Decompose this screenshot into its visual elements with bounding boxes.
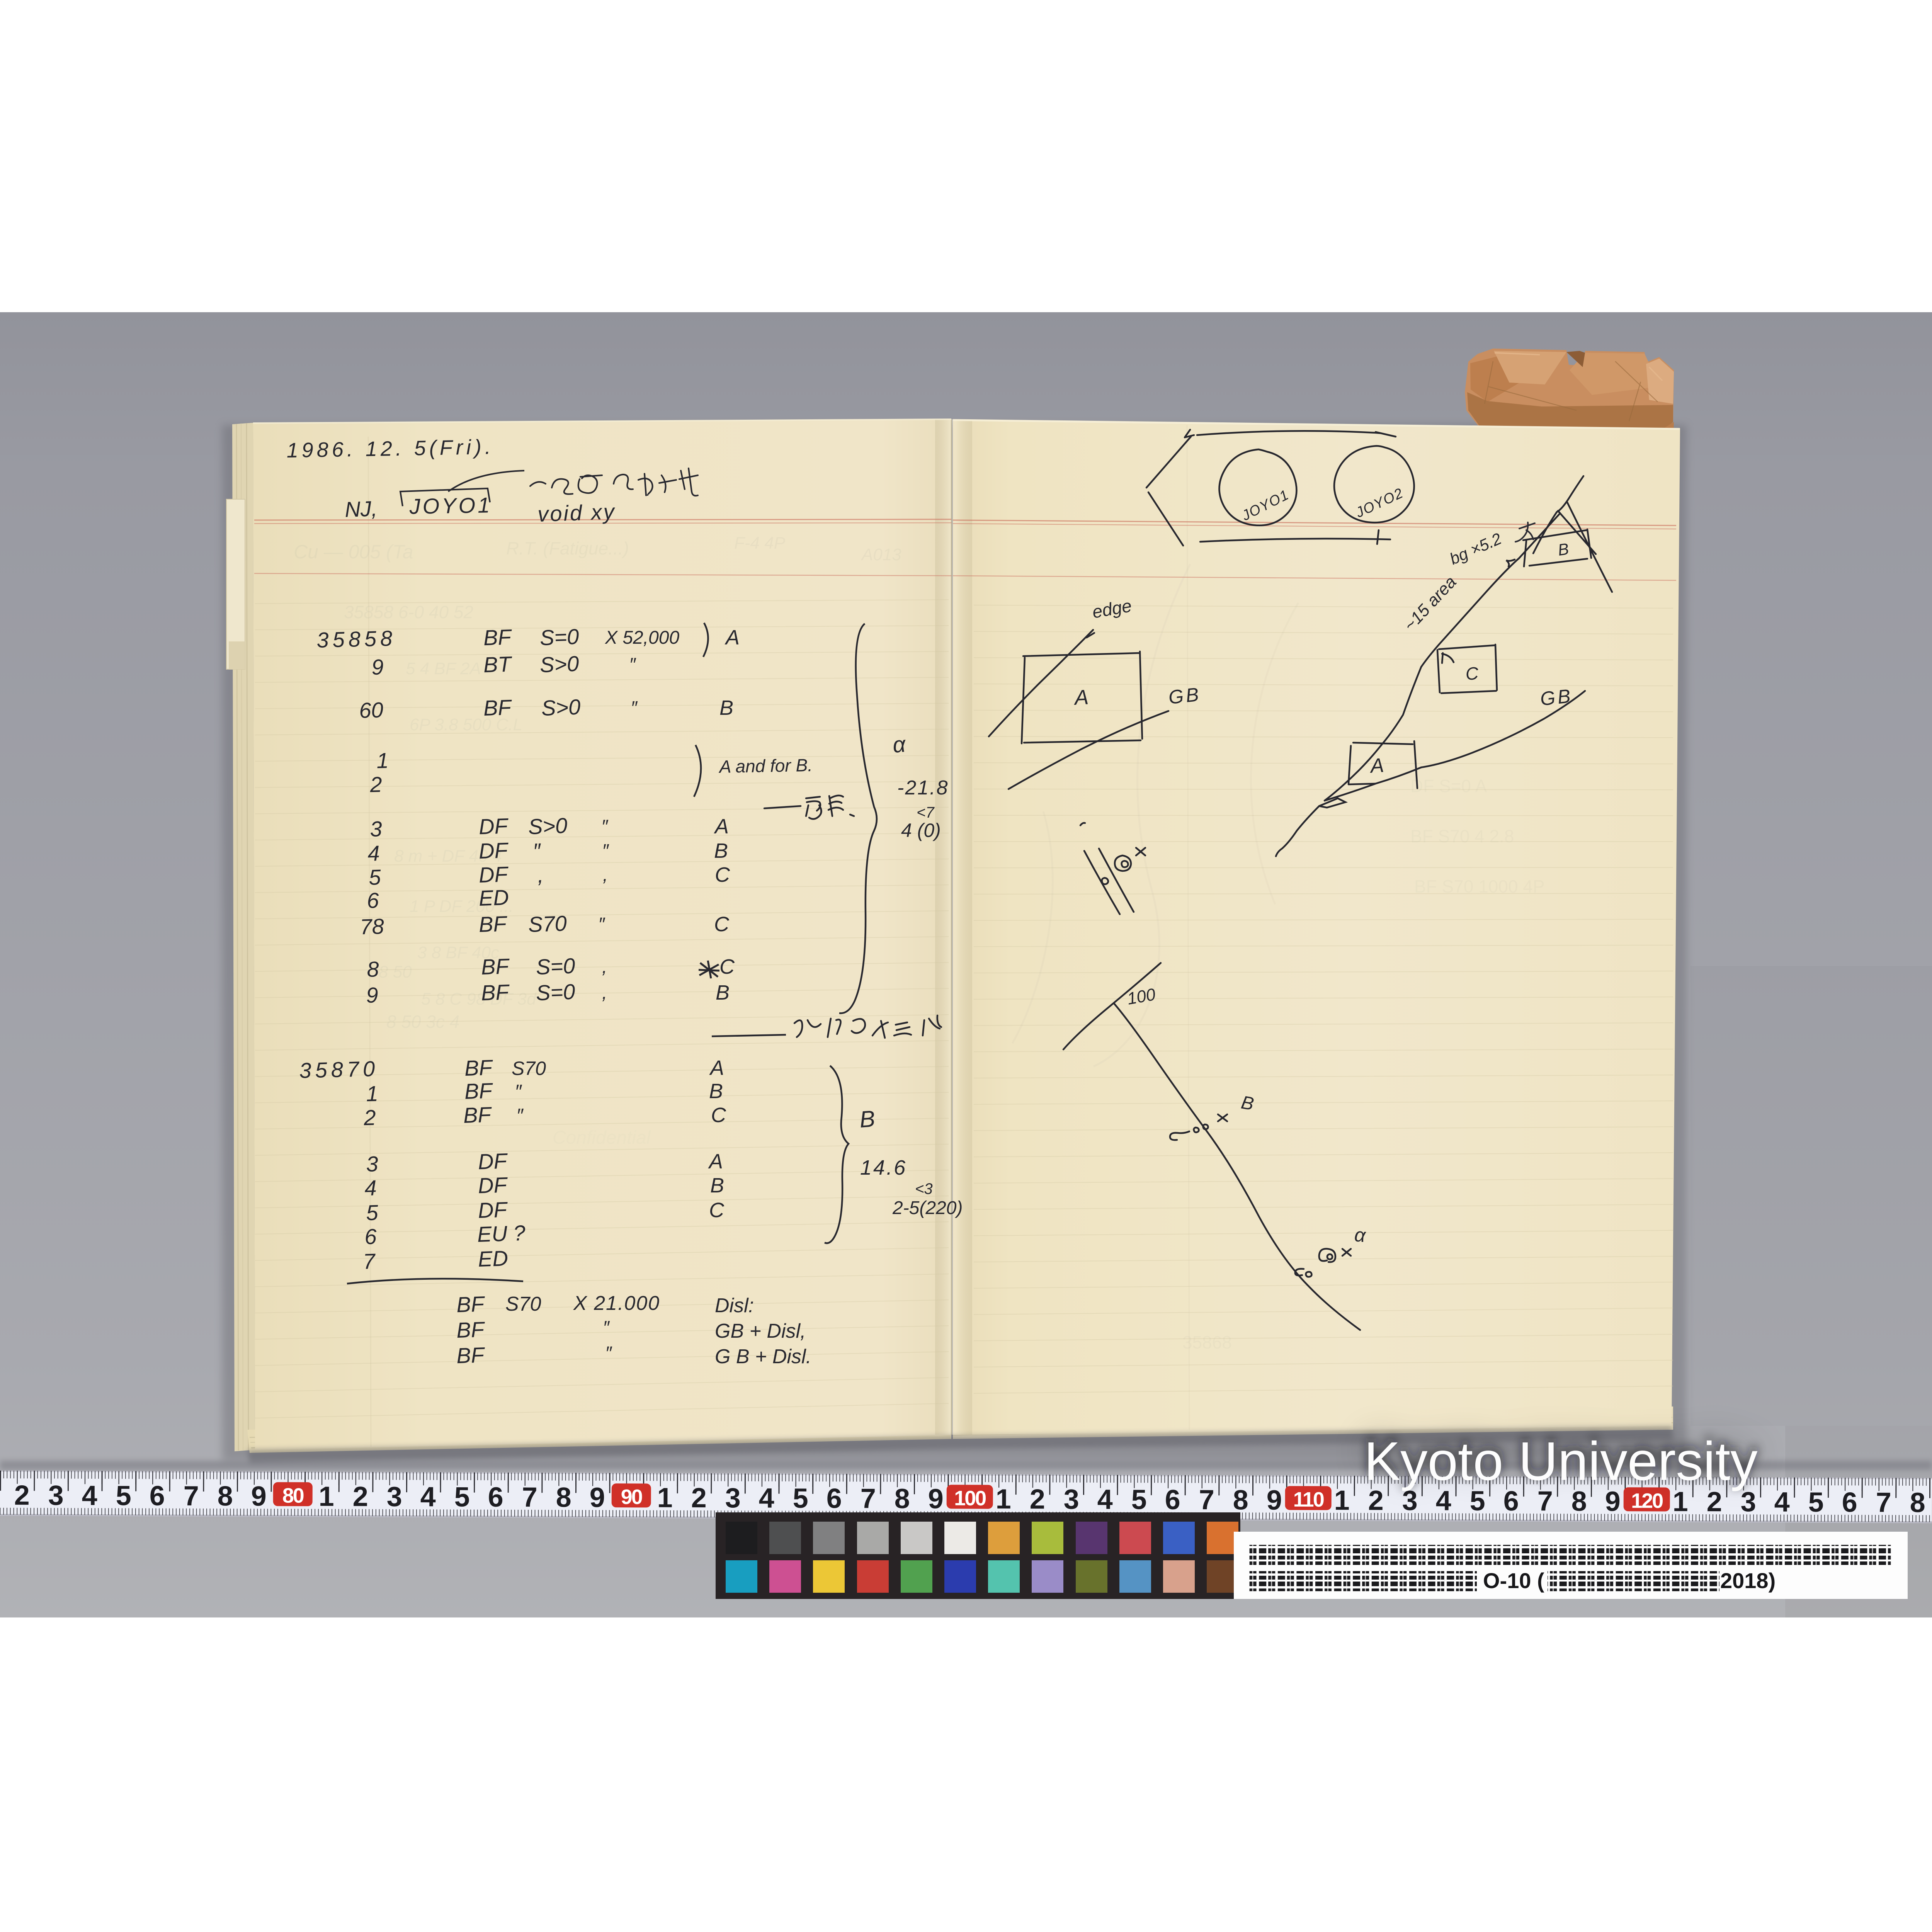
svg-text:2: 2 — [1030, 1484, 1045, 1515]
svg-text:BF: BF — [481, 980, 510, 1005]
svg-text:S>0: S>0 — [528, 813, 568, 839]
svg-text:C: C — [709, 1199, 724, 1222]
svg-text:DF: DF — [478, 1148, 509, 1174]
svg-text:35858: 35858 — [316, 626, 396, 652]
svg-text:3: 3 — [1064, 1484, 1079, 1515]
svg-text:EU ?: EU ? — [477, 1221, 526, 1247]
svg-text:DF: DF — [478, 1197, 509, 1223]
svg-text:110: 110 — [1293, 1488, 1324, 1511]
svg-text:7: 7 — [861, 1483, 876, 1514]
svg-text:7: 7 — [1876, 1487, 1891, 1518]
svg-text:C: C — [1465, 663, 1480, 684]
svg-text:″: ″ — [602, 841, 609, 861]
svg-text:BT: BT — [483, 651, 513, 677]
svg-text:1: 1 — [1334, 1485, 1350, 1516]
svg-text:BF: BF — [456, 1342, 486, 1368]
svg-text:S=0: S=0 — [536, 954, 575, 979]
svg-text:C: C — [719, 955, 735, 978]
svg-text:8 50: 8 50 — [379, 963, 412, 981]
svg-text:GB: GB — [1167, 683, 1202, 708]
svg-text:A: A — [709, 1056, 724, 1080]
svg-text:8: 8 — [895, 1483, 910, 1514]
svg-text:5: 5 — [454, 1482, 470, 1513]
svg-text:A: A — [724, 626, 740, 649]
svg-text:X 21.000: X 21.000 — [573, 1292, 660, 1315]
svg-text:2: 2 — [369, 772, 383, 797]
svg-text:DF S=0 A: DF S=0 A — [1410, 776, 1487, 796]
svg-text:6: 6 — [1842, 1487, 1857, 1518]
svg-text:8: 8 — [367, 957, 379, 981]
svg-text:S70: S70 — [528, 911, 567, 937]
svg-text:7: 7 — [363, 1249, 376, 1274]
svg-text:A: A — [714, 815, 729, 838]
svg-text:S70: S70 — [512, 1058, 546, 1079]
svg-text:A and for B.: A and for B. — [718, 755, 813, 777]
svg-text:1986. 12. 5(Fri).: 1986. 12. 5(Fri). — [286, 435, 494, 462]
svg-text:B: B — [710, 1174, 724, 1197]
svg-text:8: 8 — [556, 1482, 571, 1513]
svg-text:1: 1 — [996, 1484, 1011, 1515]
svg-text:3: 3 — [366, 1151, 379, 1176]
svg-text:BF: BF — [456, 1291, 486, 1317]
svg-text:2-5(220): 2-5(220) — [892, 1198, 963, 1218]
svg-text:BF: BF — [463, 1102, 493, 1128]
svg-text:9: 9 — [590, 1482, 605, 1513]
svg-text:2: 2 — [14, 1480, 30, 1511]
svg-text:″: ″ — [605, 1343, 612, 1364]
svg-text:4: 4 — [82, 1480, 97, 1511]
svg-text:3: 3 — [48, 1480, 64, 1511]
svg-text:R.T. (Fatigue...): R.T. (Fatigue...) — [506, 538, 629, 558]
svg-text:<3: <3 — [915, 1180, 933, 1197]
svg-text:5 4 BF 2A: 5 4 BF 2A — [406, 659, 481, 678]
svg-text:2: 2 — [363, 1105, 376, 1130]
svg-text:9: 9 — [371, 655, 384, 679]
svg-text:1: 1 — [657, 1483, 673, 1514]
svg-text:S>0: S>0 — [539, 651, 579, 677]
svg-text:78: 78 — [360, 914, 384, 939]
svg-text:A: A — [1073, 685, 1089, 709]
svg-text:2018): 2018) — [1720, 1568, 1776, 1593]
svg-text:4: 4 — [759, 1483, 774, 1514]
svg-text:B: B — [714, 839, 728, 862]
svg-text:Confidential: Confidential — [553, 1128, 651, 1148]
svg-text:4: 4 — [1097, 1484, 1113, 1515]
svg-text:3: 3 — [370, 816, 383, 841]
svg-text:void xy: void xy — [537, 499, 616, 526]
svg-text:<7: <7 — [917, 804, 935, 821]
svg-text:Cu — 005 (Ta: Cu — 005 (Ta — [294, 541, 413, 563]
svg-text:5: 5 — [1131, 1484, 1147, 1515]
svg-text:C: C — [711, 1104, 726, 1127]
svg-text:″: ″ — [603, 1318, 610, 1338]
svg-text:8: 8 — [218, 1481, 233, 1512]
svg-text:90: 90 — [621, 1485, 642, 1509]
svg-text:BF: BF — [483, 695, 513, 720]
svg-text:A: A — [708, 1150, 723, 1173]
svg-text:″: ″ — [629, 655, 636, 675]
svg-text:,: , — [602, 957, 607, 977]
svg-text:GB: GB — [1539, 685, 1574, 709]
svg-text:5: 5 — [1808, 1487, 1824, 1518]
svg-text:Kyoto University: Kyoto University — [1364, 1430, 1758, 1492]
svg-text:6: 6 — [367, 888, 380, 913]
svg-text:DF: DF — [478, 838, 509, 863]
svg-text:80: 80 — [282, 1484, 304, 1507]
svg-text:1: 1 — [366, 1081, 379, 1106]
svg-text:5: 5 — [116, 1480, 131, 1511]
svg-text:3: 3 — [725, 1483, 741, 1514]
svg-text:Disl:: Disl: — [715, 1294, 754, 1317]
svg-text:B: B — [709, 1080, 723, 1103]
svg-text:2: 2 — [353, 1481, 368, 1512]
svg-text:BF: BF — [481, 954, 510, 979]
svg-text:9: 9 — [366, 983, 379, 1007]
svg-text:G B + Disl.: G B + Disl. — [715, 1345, 811, 1368]
svg-text:1: 1 — [376, 748, 389, 773]
svg-text:S>0: S>0 — [541, 695, 581, 720]
svg-text:8: 8 — [1233, 1485, 1248, 1515]
svg-text:9: 9 — [928, 1483, 944, 1514]
svg-text:6: 6 — [1165, 1485, 1180, 1515]
svg-text:,: , — [602, 983, 607, 1003]
svg-text:DF: DF — [478, 1172, 509, 1198]
svg-text:DF: DF — [478, 813, 509, 839]
svg-text:BF S70 1000 4P: BF S70 1000 4P — [1414, 876, 1545, 896]
svg-text:3: 3 — [387, 1481, 402, 1512]
svg-text:7: 7 — [184, 1481, 199, 1512]
svg-text:″: ″ — [598, 914, 605, 935]
svg-text:O-10 (: O-10 ( — [1483, 1568, 1544, 1593]
svg-text:A: A — [1369, 754, 1385, 777]
svg-text:100: 100 — [954, 1486, 986, 1510]
svg-text:C: C — [715, 863, 730, 886]
svg-text:S=0: S=0 — [536, 980, 575, 1005]
svg-text:BF S70 4 2.8: BF S70 4 2.8 — [1410, 826, 1514, 846]
svg-text:BF: BF — [464, 1055, 494, 1080]
svg-text:DF: DF — [478, 862, 509, 887]
svg-text:60: 60 — [359, 697, 384, 723]
svg-text:8 50 3c 4: 8 50 3c 4 — [386, 1012, 459, 1032]
svg-text:BF: BF — [478, 911, 508, 937]
svg-text:S=0: S=0 — [539, 624, 579, 650]
svg-text:,: , — [603, 865, 608, 885]
svg-text:B: B — [859, 1105, 876, 1133]
svg-text:35868: 35868 — [1182, 1332, 1232, 1352]
svg-text:S70: S70 — [505, 1293, 541, 1315]
svg-text:,: , — [537, 862, 544, 887]
svg-text:6: 6 — [364, 1224, 378, 1249]
svg-text:4: 4 — [420, 1481, 436, 1512]
svg-text:ED: ED — [478, 885, 509, 910]
svg-text:6: 6 — [827, 1483, 842, 1514]
svg-text:B: B — [716, 981, 730, 1004]
svg-text:ED: ED — [478, 1246, 509, 1271]
svg-text:6: 6 — [488, 1482, 503, 1513]
svg-text:B: B — [719, 696, 733, 719]
svg-text:″: ″ — [516, 1105, 524, 1126]
svg-text:5: 5 — [369, 865, 382, 889]
svg-text:35858 6-0 40 52: 35858 6-0 40 52 — [344, 602, 473, 622]
svg-text:4 (0): 4 (0) — [901, 820, 941, 841]
svg-text:7: 7 — [1199, 1485, 1214, 1515]
svg-text:9: 9 — [1267, 1485, 1282, 1516]
svg-text:″: ″ — [631, 698, 638, 718]
svg-text:F-4 4P: F-4 4P — [734, 534, 786, 553]
svg-text:-21.8: -21.8 — [897, 777, 949, 799]
svg-text:1: 1 — [319, 1481, 334, 1512]
svg-text:4: 4 — [1774, 1487, 1790, 1518]
svg-text:5: 5 — [793, 1483, 808, 1514]
svg-text:BF: BF — [464, 1078, 494, 1104]
svg-text:8: 8 — [1910, 1487, 1925, 1518]
svg-text:4: 4 — [364, 1175, 377, 1200]
svg-text:″: ″ — [601, 816, 609, 837]
svg-text:BF: BF — [456, 1317, 486, 1342]
svg-text:BF: BF — [483, 624, 513, 650]
svg-text:GB + Disl,: GB + Disl, — [715, 1320, 806, 1342]
svg-text:X 52,000: X 52,000 — [605, 628, 679, 648]
svg-text:2: 2 — [691, 1483, 707, 1514]
svg-text:5 8 C 98 DF 3d: 5 8 C 98 DF 3d — [421, 990, 537, 1009]
svg-text:14.6: 14.6 — [860, 1156, 907, 1179]
svg-text:5: 5 — [366, 1200, 379, 1225]
svg-text:9: 9 — [251, 1481, 267, 1512]
svg-text:6: 6 — [150, 1480, 165, 1511]
svg-text:120: 120 — [1631, 1489, 1663, 1512]
svg-text:A013: A013 — [861, 545, 901, 564]
svg-text:JOYO1: JOYO1 — [409, 493, 492, 519]
svg-text:NJ,: NJ, — [344, 496, 378, 522]
svg-text:C: C — [714, 913, 730, 936]
svg-text:7: 7 — [522, 1482, 537, 1513]
svg-text:″: ″ — [515, 1081, 522, 1102]
svg-text:35870: 35870 — [299, 1056, 379, 1083]
svg-text:4: 4 — [367, 841, 380, 866]
